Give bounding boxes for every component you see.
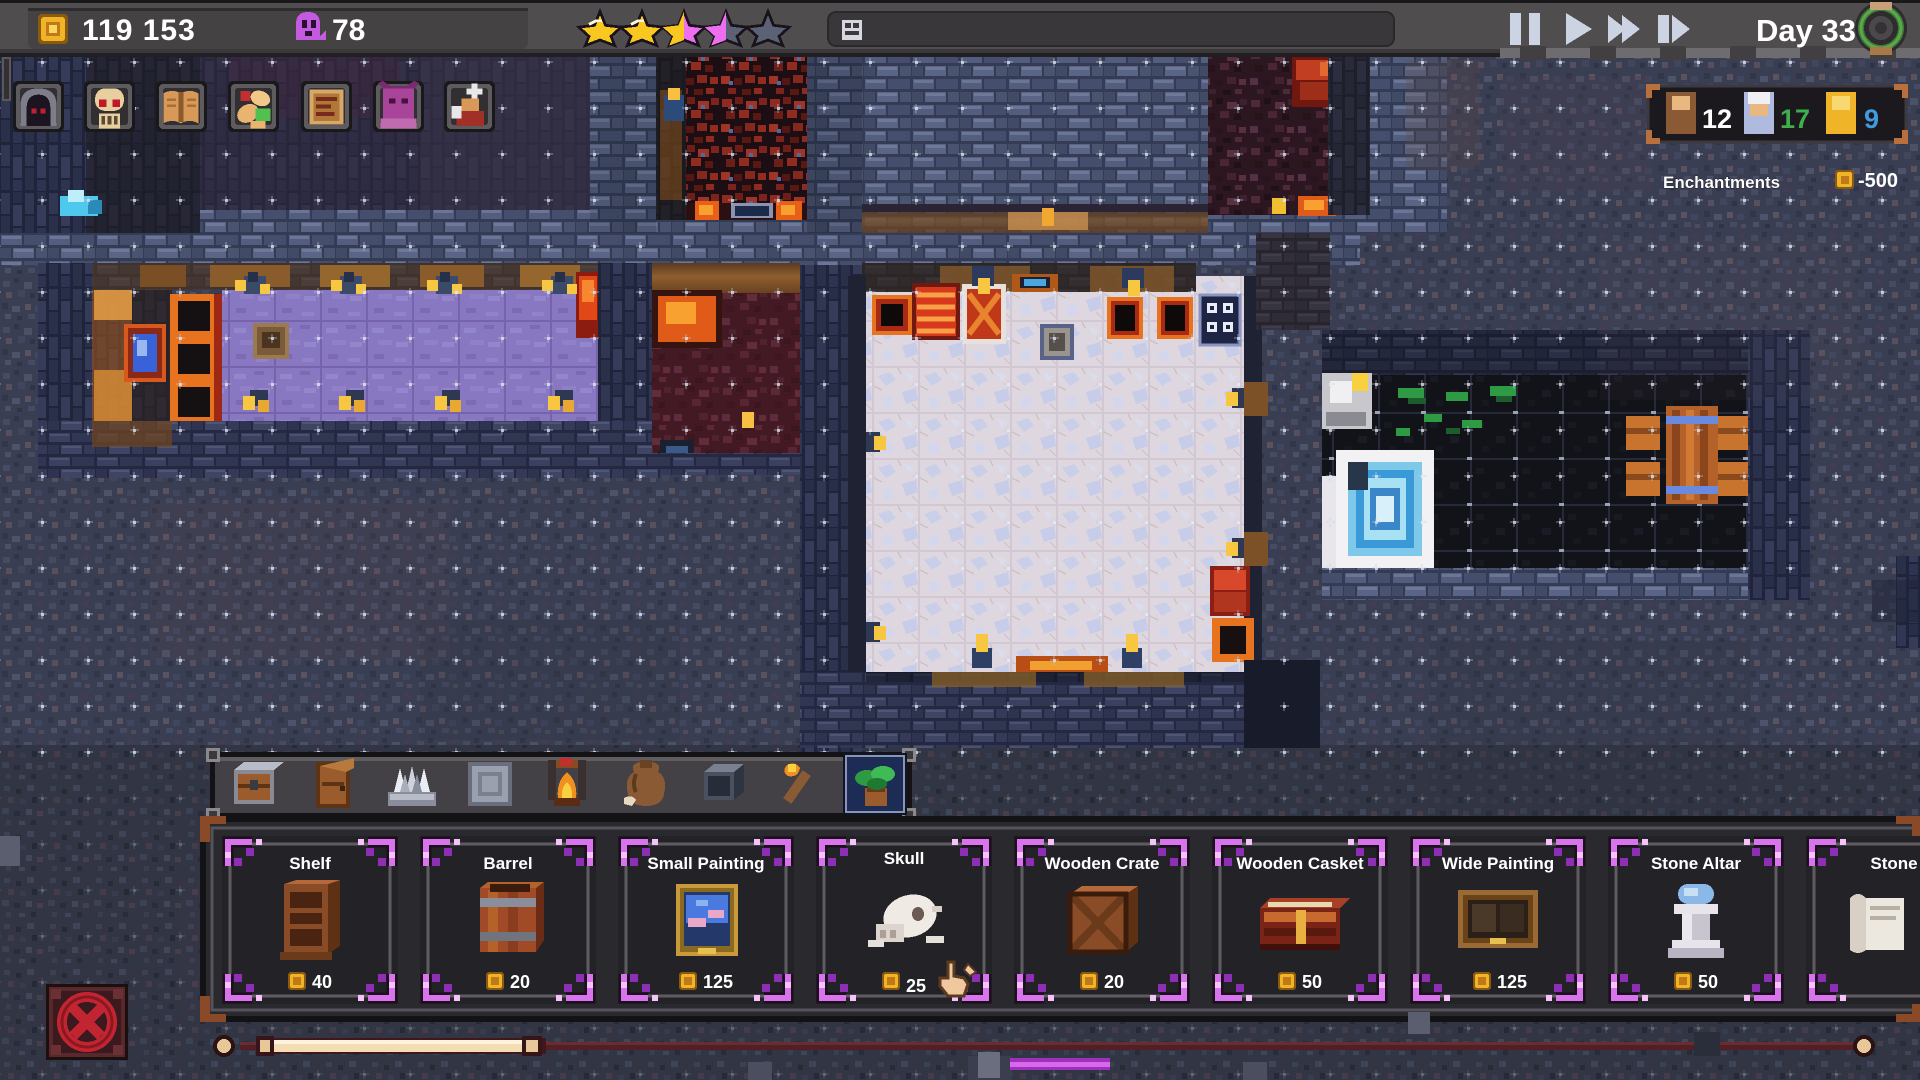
svg-text:125: 125 bbox=[1497, 972, 1527, 992]
svg-text:25: 25 bbox=[906, 976, 926, 996]
svg-text:40: 40 bbox=[312, 972, 332, 992]
svg-text:12: 12 bbox=[1702, 104, 1732, 134]
svg-text:Barrel: Barrel bbox=[483, 854, 532, 873]
svg-text:17: 17 bbox=[1780, 104, 1810, 134]
svg-text:50: 50 bbox=[1302, 972, 1322, 992]
svg-text:Skull: Skull bbox=[884, 849, 925, 868]
svg-text:119 153: 119 153 bbox=[82, 14, 196, 47]
svg-text:78: 78 bbox=[332, 14, 365, 47]
svg-text:Stone: Stone bbox=[1870, 854, 1917, 873]
svg-text:9: 9 bbox=[1864, 104, 1879, 134]
svg-text:Wooden Casket: Wooden Casket bbox=[1236, 854, 1364, 873]
svg-text:50: 50 bbox=[1698, 972, 1718, 992]
svg-text:20: 20 bbox=[510, 972, 530, 992]
svg-text:125: 125 bbox=[703, 972, 733, 992]
svg-text:-500: -500 bbox=[1858, 170, 1898, 192]
svg-text:Wide Painting: Wide Painting bbox=[1442, 854, 1554, 873]
svg-text:Enchantments: Enchantments bbox=[1663, 173, 1780, 192]
svg-text:Wooden Crate: Wooden Crate bbox=[1045, 854, 1160, 873]
svg-text:Day 33: Day 33 bbox=[1756, 13, 1856, 48]
svg-text:Small Painting: Small Painting bbox=[647, 854, 764, 873]
svg-text:Stone Altar: Stone Altar bbox=[1651, 854, 1741, 873]
svg-text:Shelf: Shelf bbox=[289, 854, 331, 873]
svg-text:20: 20 bbox=[1104, 972, 1124, 992]
